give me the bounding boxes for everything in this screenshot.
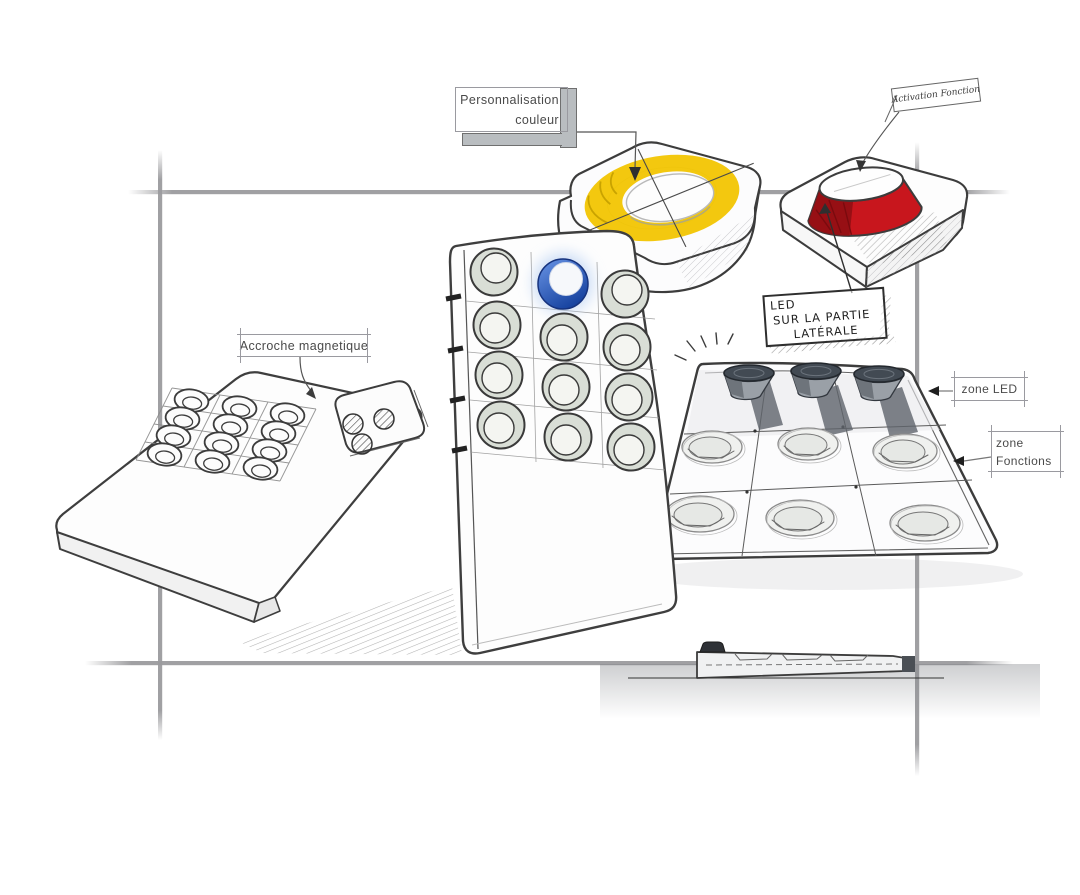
- color-swatch-bar-horizontal: [462, 133, 562, 146]
- personnalisation-couleur-label: Personnalisation couleur: [448, 84, 588, 154]
- red-led-button-module: [780, 157, 967, 287]
- keypad-buttons: [471, 249, 655, 471]
- activation-note-text: Activation Fonction: [891, 85, 980, 106]
- led-lateral-handwritten-note: LED SUR LA PARTIE LATÉRALE: [762, 287, 887, 347]
- device-side-profile: [600, 642, 1040, 719]
- zone-led-label-text: zone LED: [962, 382, 1018, 396]
- zone-fonctions-line2: Fonctions: [996, 452, 1052, 470]
- accroche-label-text: Accroche magnetique: [240, 339, 369, 353]
- personnalisation-line2: couleur: [456, 110, 559, 130]
- upright-keypad-3x4: [446, 231, 676, 654]
- personnalisation-line1: Personnalisation: [456, 90, 559, 110]
- personnalisation-label-box: Personnalisation couleur: [455, 87, 568, 132]
- flat-magnetic-pad: [56, 372, 428, 622]
- zone-fonctions-label: zone Fonctions: [988, 431, 1064, 472]
- zone-led-label: zone LED: [951, 377, 1028, 401]
- sketch-canvas: Personnalisation couleur Accroche magnet…: [0, 0, 1080, 895]
- sparkle-marks: [675, 333, 733, 360]
- blue-active-button: [538, 259, 588, 309]
- zone-led-arrow: [928, 386, 939, 396]
- accroche-magnetique-label: Accroche magnetique: [237, 334, 371, 357]
- zone-fonctions-line1: zone: [996, 434, 1024, 452]
